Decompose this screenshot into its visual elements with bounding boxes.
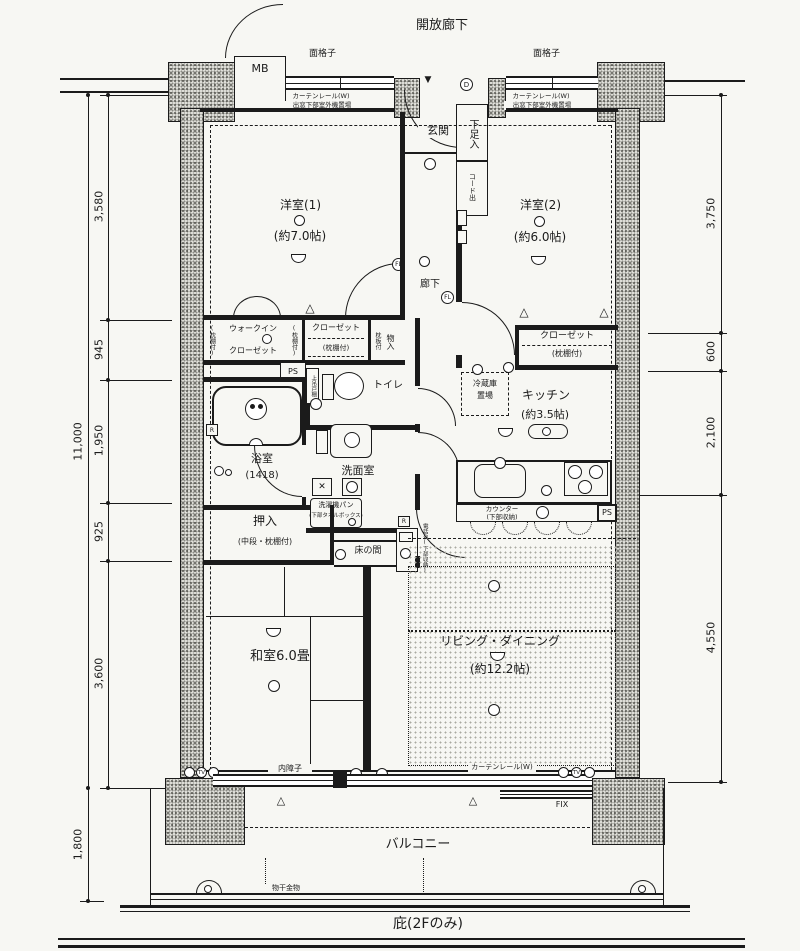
hisashi-line xyxy=(58,938,745,940)
balcony-rail xyxy=(120,911,690,912)
stove-burner xyxy=(568,465,582,479)
wall-left xyxy=(180,108,204,778)
washer-drain xyxy=(348,518,356,526)
wall-under-window-right xyxy=(506,108,598,112)
toilet-label: トイレ xyxy=(366,380,410,393)
bath-drain-dot xyxy=(258,404,263,409)
dim-dot xyxy=(86,899,90,903)
dim-tick xyxy=(80,901,104,902)
bottom-wall-line xyxy=(204,770,615,772)
corridor-wall xyxy=(415,474,420,510)
floor-plan: 11,000 3,580 945 1,950 925 3,600 1,800 3… xyxy=(0,0,800,951)
dim-dot xyxy=(719,493,723,497)
tatami-line xyxy=(310,616,311,770)
dim-dot xyxy=(106,318,110,322)
r-box-bath: R xyxy=(206,424,218,436)
ld-dash-top xyxy=(408,538,636,539)
dim-left-seg-3: 925 xyxy=(93,512,106,552)
hisashi-line xyxy=(58,945,745,948)
window-living xyxy=(347,774,592,787)
dim-dot xyxy=(86,93,90,97)
wic-shelf-right: (枕棚付) xyxy=(288,320,299,362)
washitsu-label: 和室6.0畳 xyxy=(228,648,332,665)
makuraita-label: 枕板付 xyxy=(372,320,382,362)
window-symbol xyxy=(558,767,569,778)
washer-pan-label: 洗濯機パン xyxy=(312,501,360,510)
faucet-symbol xyxy=(494,457,506,469)
wall-top-seg xyxy=(596,108,618,112)
bath-door-arc xyxy=(254,445,302,497)
wic-shelf-left: (枕棚付) xyxy=(206,320,217,362)
handrail-circle xyxy=(638,885,646,893)
dim-left-seg-0: 3,580 xyxy=(93,187,106,227)
window-post xyxy=(333,772,347,788)
wall xyxy=(515,325,618,330)
dim-dot xyxy=(86,786,90,790)
mb-label: MB xyxy=(240,62,280,76)
hisashi-label: 庇(2Fのみ) xyxy=(382,915,474,934)
genkan-step-line xyxy=(404,152,456,154)
light-symbol xyxy=(472,364,483,375)
dim-left-seg-2: 1,950 xyxy=(93,421,106,461)
ld-label: リビング・ダイニング xyxy=(420,634,580,649)
corridor-wall xyxy=(456,355,462,368)
hallway-label: 廊下 xyxy=(414,279,446,292)
dim-line-left-outer xyxy=(88,95,89,901)
pillar-bottom-left xyxy=(165,778,245,845)
light-symbol xyxy=(266,628,281,637)
tokonoma-wall xyxy=(334,540,398,542)
closet-fold-mark: △ xyxy=(514,303,534,321)
stove-burner xyxy=(578,480,592,494)
balcony-label: バルコニー xyxy=(380,836,456,853)
switch-plate xyxy=(457,210,467,226)
door-symbol-d: D xyxy=(460,78,473,91)
kitchen-sink xyxy=(474,464,526,498)
dim-tick xyxy=(648,371,727,372)
dim-right-seg-2: 2,100 xyxy=(705,413,718,453)
tv-symbol: TV xyxy=(571,767,582,778)
wall xyxy=(330,505,334,565)
wall xyxy=(515,365,618,370)
window-fix xyxy=(500,790,592,799)
tokonoma-symbol xyxy=(335,549,346,560)
bath-drain xyxy=(245,398,267,420)
dim-tick xyxy=(100,320,172,321)
pendant-arc xyxy=(502,522,528,535)
open-corridor-label: 開放廊下 xyxy=(398,17,486,35)
light-symbol xyxy=(503,362,514,373)
room2-name: 洋室(2) xyxy=(498,197,583,213)
washroom-door-arc xyxy=(418,432,460,474)
wall xyxy=(368,317,371,363)
dim-tick xyxy=(100,380,172,381)
dim-dot xyxy=(106,93,110,97)
window-symbol xyxy=(184,767,195,778)
shoebox-label: 下足入 xyxy=(463,110,481,158)
tatami-line xyxy=(310,700,363,701)
fix-label: FIX xyxy=(548,800,576,810)
dim-dot xyxy=(719,369,723,373)
corridor-wall xyxy=(400,112,405,318)
light-symbol xyxy=(531,256,546,265)
symbol-circle xyxy=(541,485,552,496)
dim-tick xyxy=(100,95,172,96)
pillar-stub-entry-right xyxy=(488,78,506,118)
light-symbol xyxy=(488,704,500,716)
switch-plate xyxy=(457,230,467,244)
entry-marker: ▼ xyxy=(420,76,436,86)
curtain-rail-bottom-label: カーテンレール(W) xyxy=(468,763,536,773)
tatami-line xyxy=(206,616,363,617)
tokonoma-label: 床の間 xyxy=(344,546,392,558)
wall xyxy=(302,497,306,509)
light-symbol xyxy=(534,216,545,227)
oshiire-sub-label: (中段・枕棚付) xyxy=(222,537,308,548)
room1-name: 洋室(1) xyxy=(258,197,343,213)
bay-note-rail-right: カーテンレール(W) xyxy=(508,92,574,101)
corridor-edge-line xyxy=(60,91,168,93)
washitsu-ld-wall xyxy=(363,567,371,770)
grille-left-label: 面格子 xyxy=(300,49,345,61)
dim-dot xyxy=(106,786,110,790)
dim-dot xyxy=(719,93,723,97)
light-symbol xyxy=(291,254,306,263)
ld-divider xyxy=(408,630,616,632)
tatami-line xyxy=(284,567,285,616)
closet-mid-shelf: (枕棚付) xyxy=(310,344,362,354)
window-open-mark: △ xyxy=(464,794,482,808)
genkan-label: 玄関 xyxy=(418,124,458,138)
closet-shelf-dash xyxy=(308,338,364,339)
r-box-tel: R xyxy=(398,516,410,527)
corridor-wall xyxy=(456,216,462,302)
light-symbol xyxy=(294,215,305,226)
washer-sub-label: (下部タオルボックス) xyxy=(306,513,366,521)
dim-tick xyxy=(100,561,172,562)
offset-dash-left xyxy=(210,125,211,770)
shoebox-divider xyxy=(456,160,488,162)
wic-line1: ウォークイン xyxy=(218,324,288,335)
pendant-arc xyxy=(534,522,560,535)
wall xyxy=(204,560,334,565)
uchishoji-label: 内障子 xyxy=(268,764,312,774)
wall-top-seg xyxy=(200,108,288,112)
washbasin-side-cab xyxy=(316,430,328,454)
handrail-circle xyxy=(204,885,212,893)
light-symbol xyxy=(419,256,430,267)
kitchen-size-label: (約3.5帖) xyxy=(510,408,580,422)
dim-dot xyxy=(106,559,110,563)
fl-symbol: FL xyxy=(441,291,454,304)
toilet-door-arc xyxy=(418,388,456,426)
dim-line-right xyxy=(721,95,722,782)
grille-right-label: 面格子 xyxy=(524,49,569,61)
dim-tick xyxy=(100,788,172,789)
window-symbol xyxy=(584,767,595,778)
bath-drain-dot xyxy=(250,404,255,409)
room1-size: (約7.0帖) xyxy=(250,228,350,244)
fridge-label-1: 冷蔵庫 xyxy=(464,379,506,389)
counter-circle xyxy=(536,506,549,519)
dim-right-seg-1: 600 xyxy=(705,335,718,369)
room2-door-arc xyxy=(462,302,515,355)
light-symbol xyxy=(268,680,280,692)
closet2-label: クローゼット xyxy=(532,331,602,342)
dim-left-seg-4: 3,600 xyxy=(93,654,106,694)
washroom-label: 洗面室 xyxy=(330,464,386,478)
window-mullion xyxy=(340,76,341,90)
hanger-symbol xyxy=(262,334,272,344)
offset-dash-top xyxy=(210,125,611,126)
pillar-bottom-right xyxy=(592,778,665,845)
closet-shelf-dash xyxy=(308,356,364,357)
fixture-box-cross: ✕ xyxy=(312,478,332,496)
room2-size: (約6.0帖) xyxy=(490,229,590,245)
shower-symbol xyxy=(214,466,224,476)
mb-door-arc xyxy=(225,4,283,58)
closet-fold-mark: △ xyxy=(594,303,614,321)
kitchen-label: キッチン xyxy=(514,388,578,403)
counter-label-2: (下部収納) xyxy=(476,513,528,521)
wall xyxy=(204,377,306,382)
monohoshi-line xyxy=(423,858,424,892)
tel-stand-top xyxy=(399,532,413,542)
dim-dot xyxy=(106,501,110,505)
light-symbol xyxy=(498,428,513,437)
light-symbol xyxy=(424,158,436,170)
dim-right-seg-0: 3,750 xyxy=(705,194,718,234)
room1-door-arc xyxy=(345,263,400,318)
corridor-wall xyxy=(415,424,420,432)
paper-holder-symbol xyxy=(310,398,322,410)
fridge-label-2: 置場 xyxy=(470,391,500,401)
toilet-tank xyxy=(322,374,334,400)
dim-dot xyxy=(719,331,723,335)
balcony-rail xyxy=(150,893,663,895)
shower-symbol xyxy=(225,469,232,476)
balcony-dash xyxy=(245,827,590,828)
monohoshi-label: 物干金物 xyxy=(262,884,310,893)
dim-right-seg-3: 4,550 xyxy=(705,618,718,658)
wall xyxy=(302,382,306,445)
counter-label-1: カウンター xyxy=(476,505,528,513)
balcony-side-line xyxy=(663,788,664,908)
monoire-label: 物入 xyxy=(384,326,396,358)
balcony-side-line xyxy=(150,788,151,908)
dim-balcony-depth: 1,800 xyxy=(72,823,85,867)
dim-dot xyxy=(719,780,723,784)
window-open-mark: △ xyxy=(272,794,290,808)
light-symbol xyxy=(488,580,500,592)
washbasin-bowl xyxy=(344,432,360,448)
tv-symbol: TV xyxy=(196,767,207,778)
oshiire-label: 押入 xyxy=(238,514,292,529)
window-washitsu xyxy=(213,774,333,787)
fixture-circle xyxy=(346,481,358,493)
balcony-rail xyxy=(150,899,663,900)
entrance-door-arc xyxy=(404,90,462,148)
dim-tick xyxy=(630,495,727,496)
bay-note-rail-left: カーテンレール(W) xyxy=(288,92,354,101)
dim-tick xyxy=(100,503,172,504)
kitchen-light-circle xyxy=(542,427,551,436)
corridor-edge-line xyxy=(665,80,745,82)
closet2-shelf: (枕棚付) xyxy=(540,349,594,360)
pendant-arc xyxy=(470,522,496,535)
stove-burner xyxy=(589,465,603,479)
ld-size-label: (約12.2帖) xyxy=(440,662,560,677)
wall-under-window-left xyxy=(286,108,396,112)
dim-tick xyxy=(655,95,727,96)
dim-line-left-inner xyxy=(108,95,109,788)
closet-shelf-dash xyxy=(522,345,612,346)
corridor-edge-line xyxy=(60,78,168,80)
window-mullion xyxy=(552,76,553,90)
pendant-arc xyxy=(566,522,592,535)
dim-left-seg-1: 945 xyxy=(93,330,106,370)
dim-dot xyxy=(106,378,110,382)
ps-label-lower: PS xyxy=(597,505,617,521)
toilet-bowl xyxy=(334,372,364,400)
cord-out-label: コード出 xyxy=(464,166,480,208)
wic-line2: クローゼット xyxy=(218,346,288,357)
wall xyxy=(302,317,305,363)
corridor-wall xyxy=(415,318,420,386)
closet-mid-label: クローゼット xyxy=(306,323,366,333)
balcony-rail xyxy=(120,905,690,908)
wall xyxy=(515,325,519,370)
wall-right xyxy=(615,108,640,778)
dim-left-total: 11,000 xyxy=(72,416,85,468)
